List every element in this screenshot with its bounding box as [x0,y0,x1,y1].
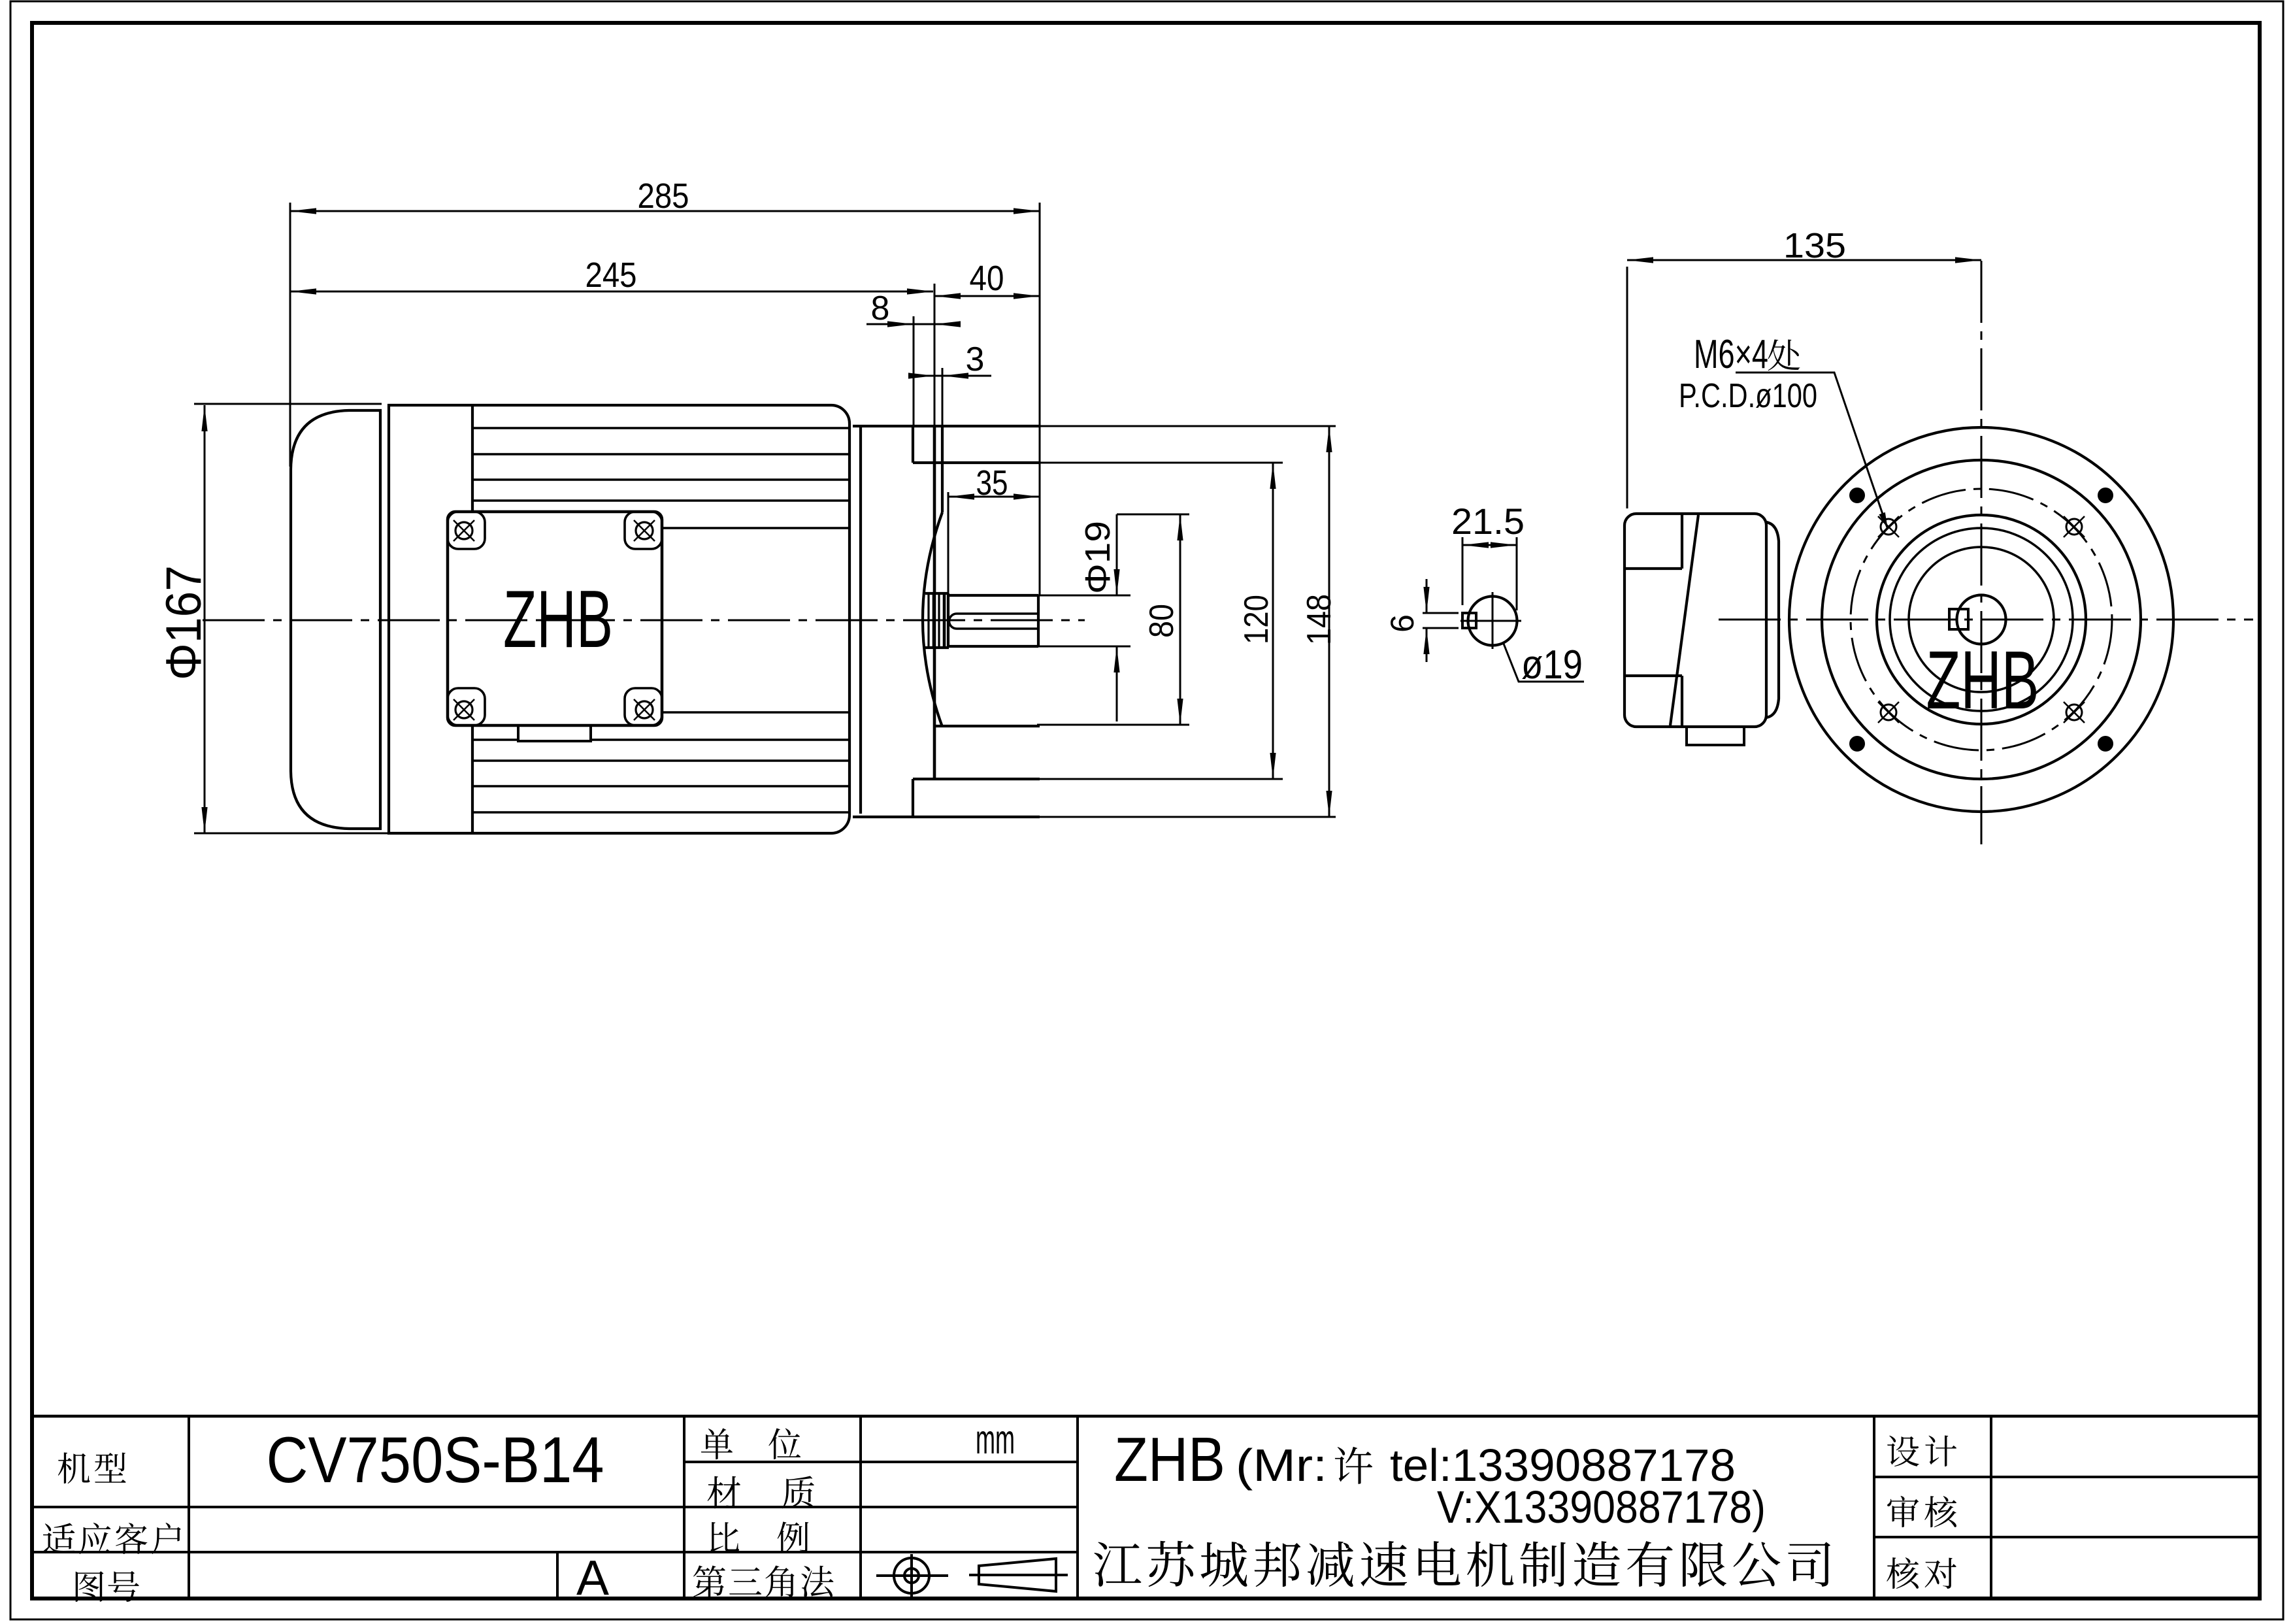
svg-text:(Mr:: (Mr: [1236,1440,1327,1491]
svg-text:Φ19: Φ19 [1078,521,1117,594]
svg-text:245: 245 [586,256,637,295]
svg-text:V:X13390887178): V:X13390887178) [1437,1482,1766,1533]
svg-text:P.C.D.ø100: P.C.D.ø100 [1679,377,1817,415]
svg-text:3: 3 [966,340,985,378]
svg-text:M6×4: M6×4 [1694,332,1768,377]
svg-text:80: 80 [1143,604,1181,638]
svg-text:135: 135 [1783,226,1846,265]
svg-text:40: 40 [970,259,1004,298]
svg-text:mm: mm [976,1417,1015,1463]
svg-text:ø19: ø19 [1521,642,1583,688]
svg-text:35: 35 [976,463,1008,503]
svg-text:148: 148 [1300,594,1338,645]
svg-text:8: 8 [871,290,890,327]
svg-text:ZHB: ZHB [503,574,613,665]
svg-text:ZHB: ZHB [1114,1425,1225,1495]
svg-text:21.5: 21.5 [1451,501,1525,542]
svg-text:CV750S-B14: CV750S-B14 [267,1423,604,1496]
svg-text:6: 6 [1384,614,1421,633]
svg-text:Φ167: Φ167 [156,565,212,680]
svg-text:285: 285 [638,176,689,216]
svg-text:120: 120 [1238,595,1276,644]
svg-text:A: A [576,1550,609,1605]
svg-text:ZHB: ZHB [1926,634,2039,726]
